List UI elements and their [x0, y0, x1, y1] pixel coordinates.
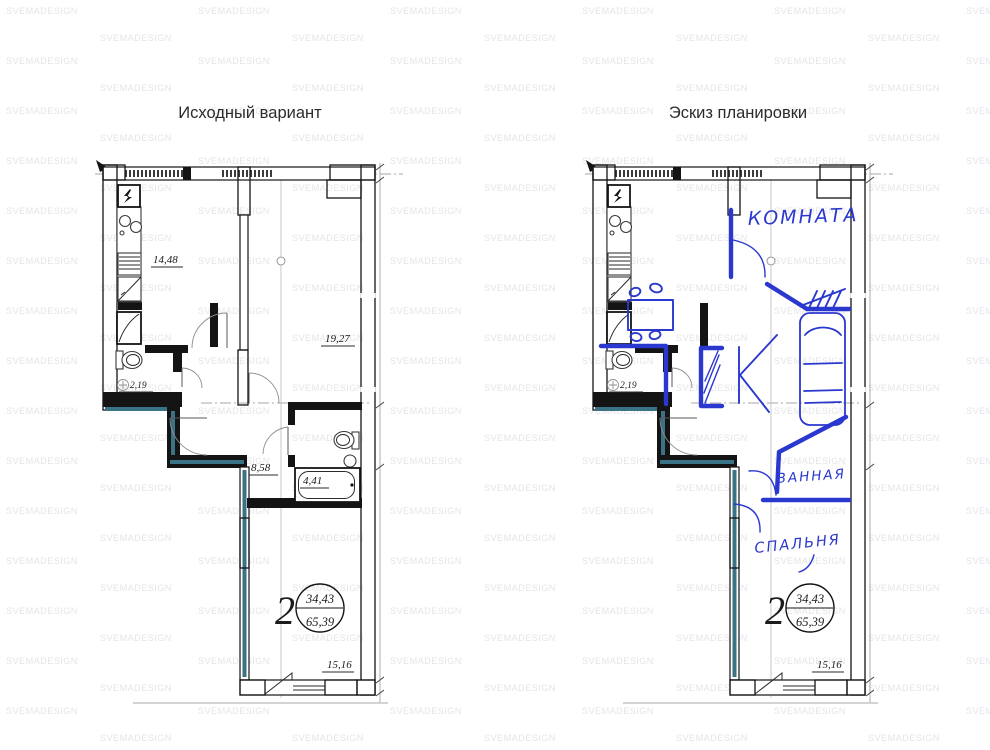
plans-canvas: SVEMADESIGN SVEMADESIGN [0, 0, 990, 750]
right-plan-title: Эскиз планировки [669, 104, 807, 122]
left-plan-title: Исходный вариант [178, 104, 322, 122]
watermark-layer [0, 0, 990, 750]
floor-plan-comparison-page: SVEMADESIGN SVEMADESIGN [0, 0, 990, 750]
